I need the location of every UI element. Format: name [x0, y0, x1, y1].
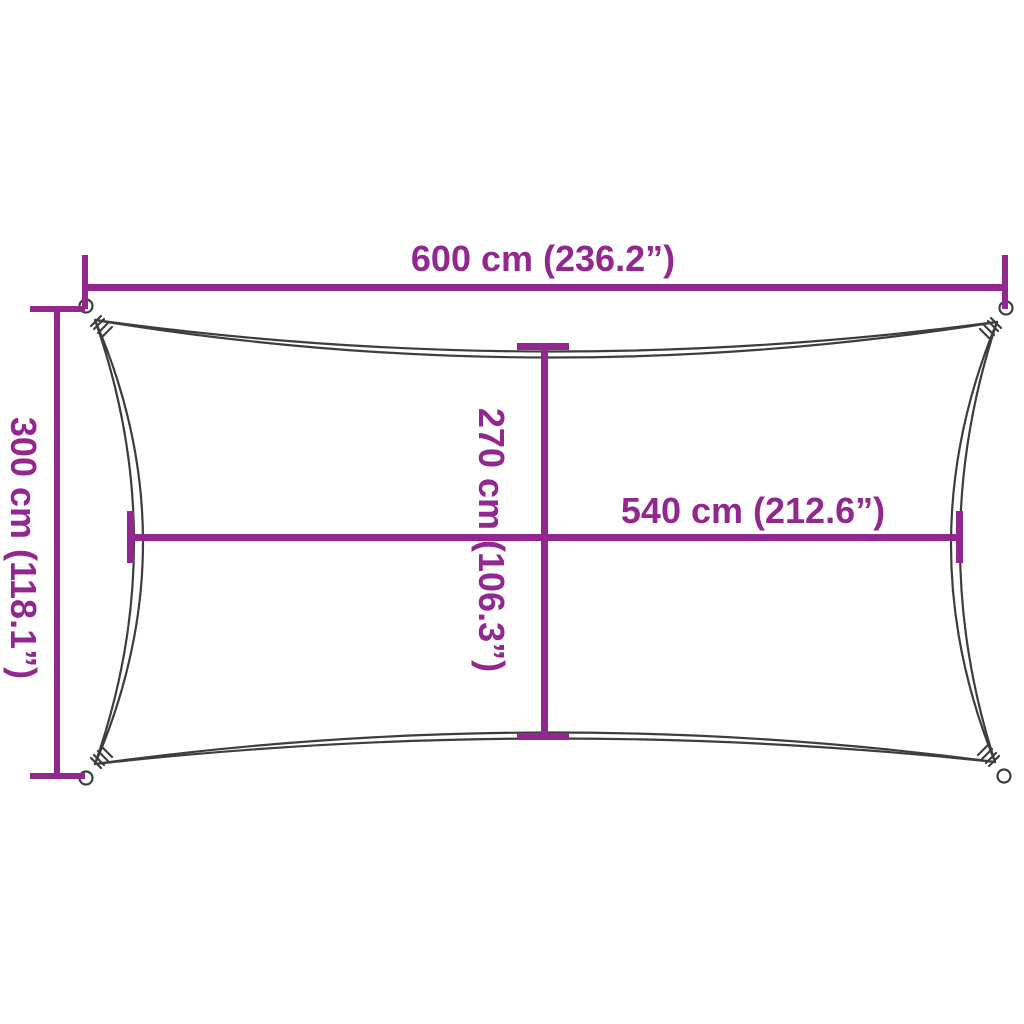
- dim-line-300: [54, 308, 60, 779]
- corner-loop-bottom-right: [978, 745, 1011, 783]
- dim-label-height-inner: 270 cm (106.3”): [472, 408, 510, 672]
- dim-tick-300-top: [30, 306, 85, 312]
- dim-tick-540-left: [127, 511, 134, 563]
- dim-tick-600-right: [1002, 255, 1008, 309]
- dim-line-540: [130, 534, 960, 541]
- product-dimension-diagram: 600 cm (236.2”) 300 cm (118.1”) 270 cm (…: [0, 0, 1024, 1024]
- dim-tick-540-right: [956, 511, 963, 563]
- dim-line-600: [85, 284, 1005, 291]
- dim-tick-270-top: [517, 343, 569, 350]
- dim-tick-300-bottom: [30, 773, 85, 779]
- dim-label-width-inner: 540 cm (212.6”): [621, 492, 885, 530]
- sail-edge-left: [95, 320, 143, 764]
- dim-label-height-total: 300 cm (118.1”): [4, 417, 42, 679]
- dim-line-270: [541, 346, 548, 740]
- dim-tick-600-left: [82, 255, 88, 309]
- dim-tick-270-bottom: [517, 733, 569, 740]
- dim-label-width-total: 600 cm (236.2”): [411, 240, 675, 278]
- dimension-line-height-inner: [517, 343, 569, 740]
